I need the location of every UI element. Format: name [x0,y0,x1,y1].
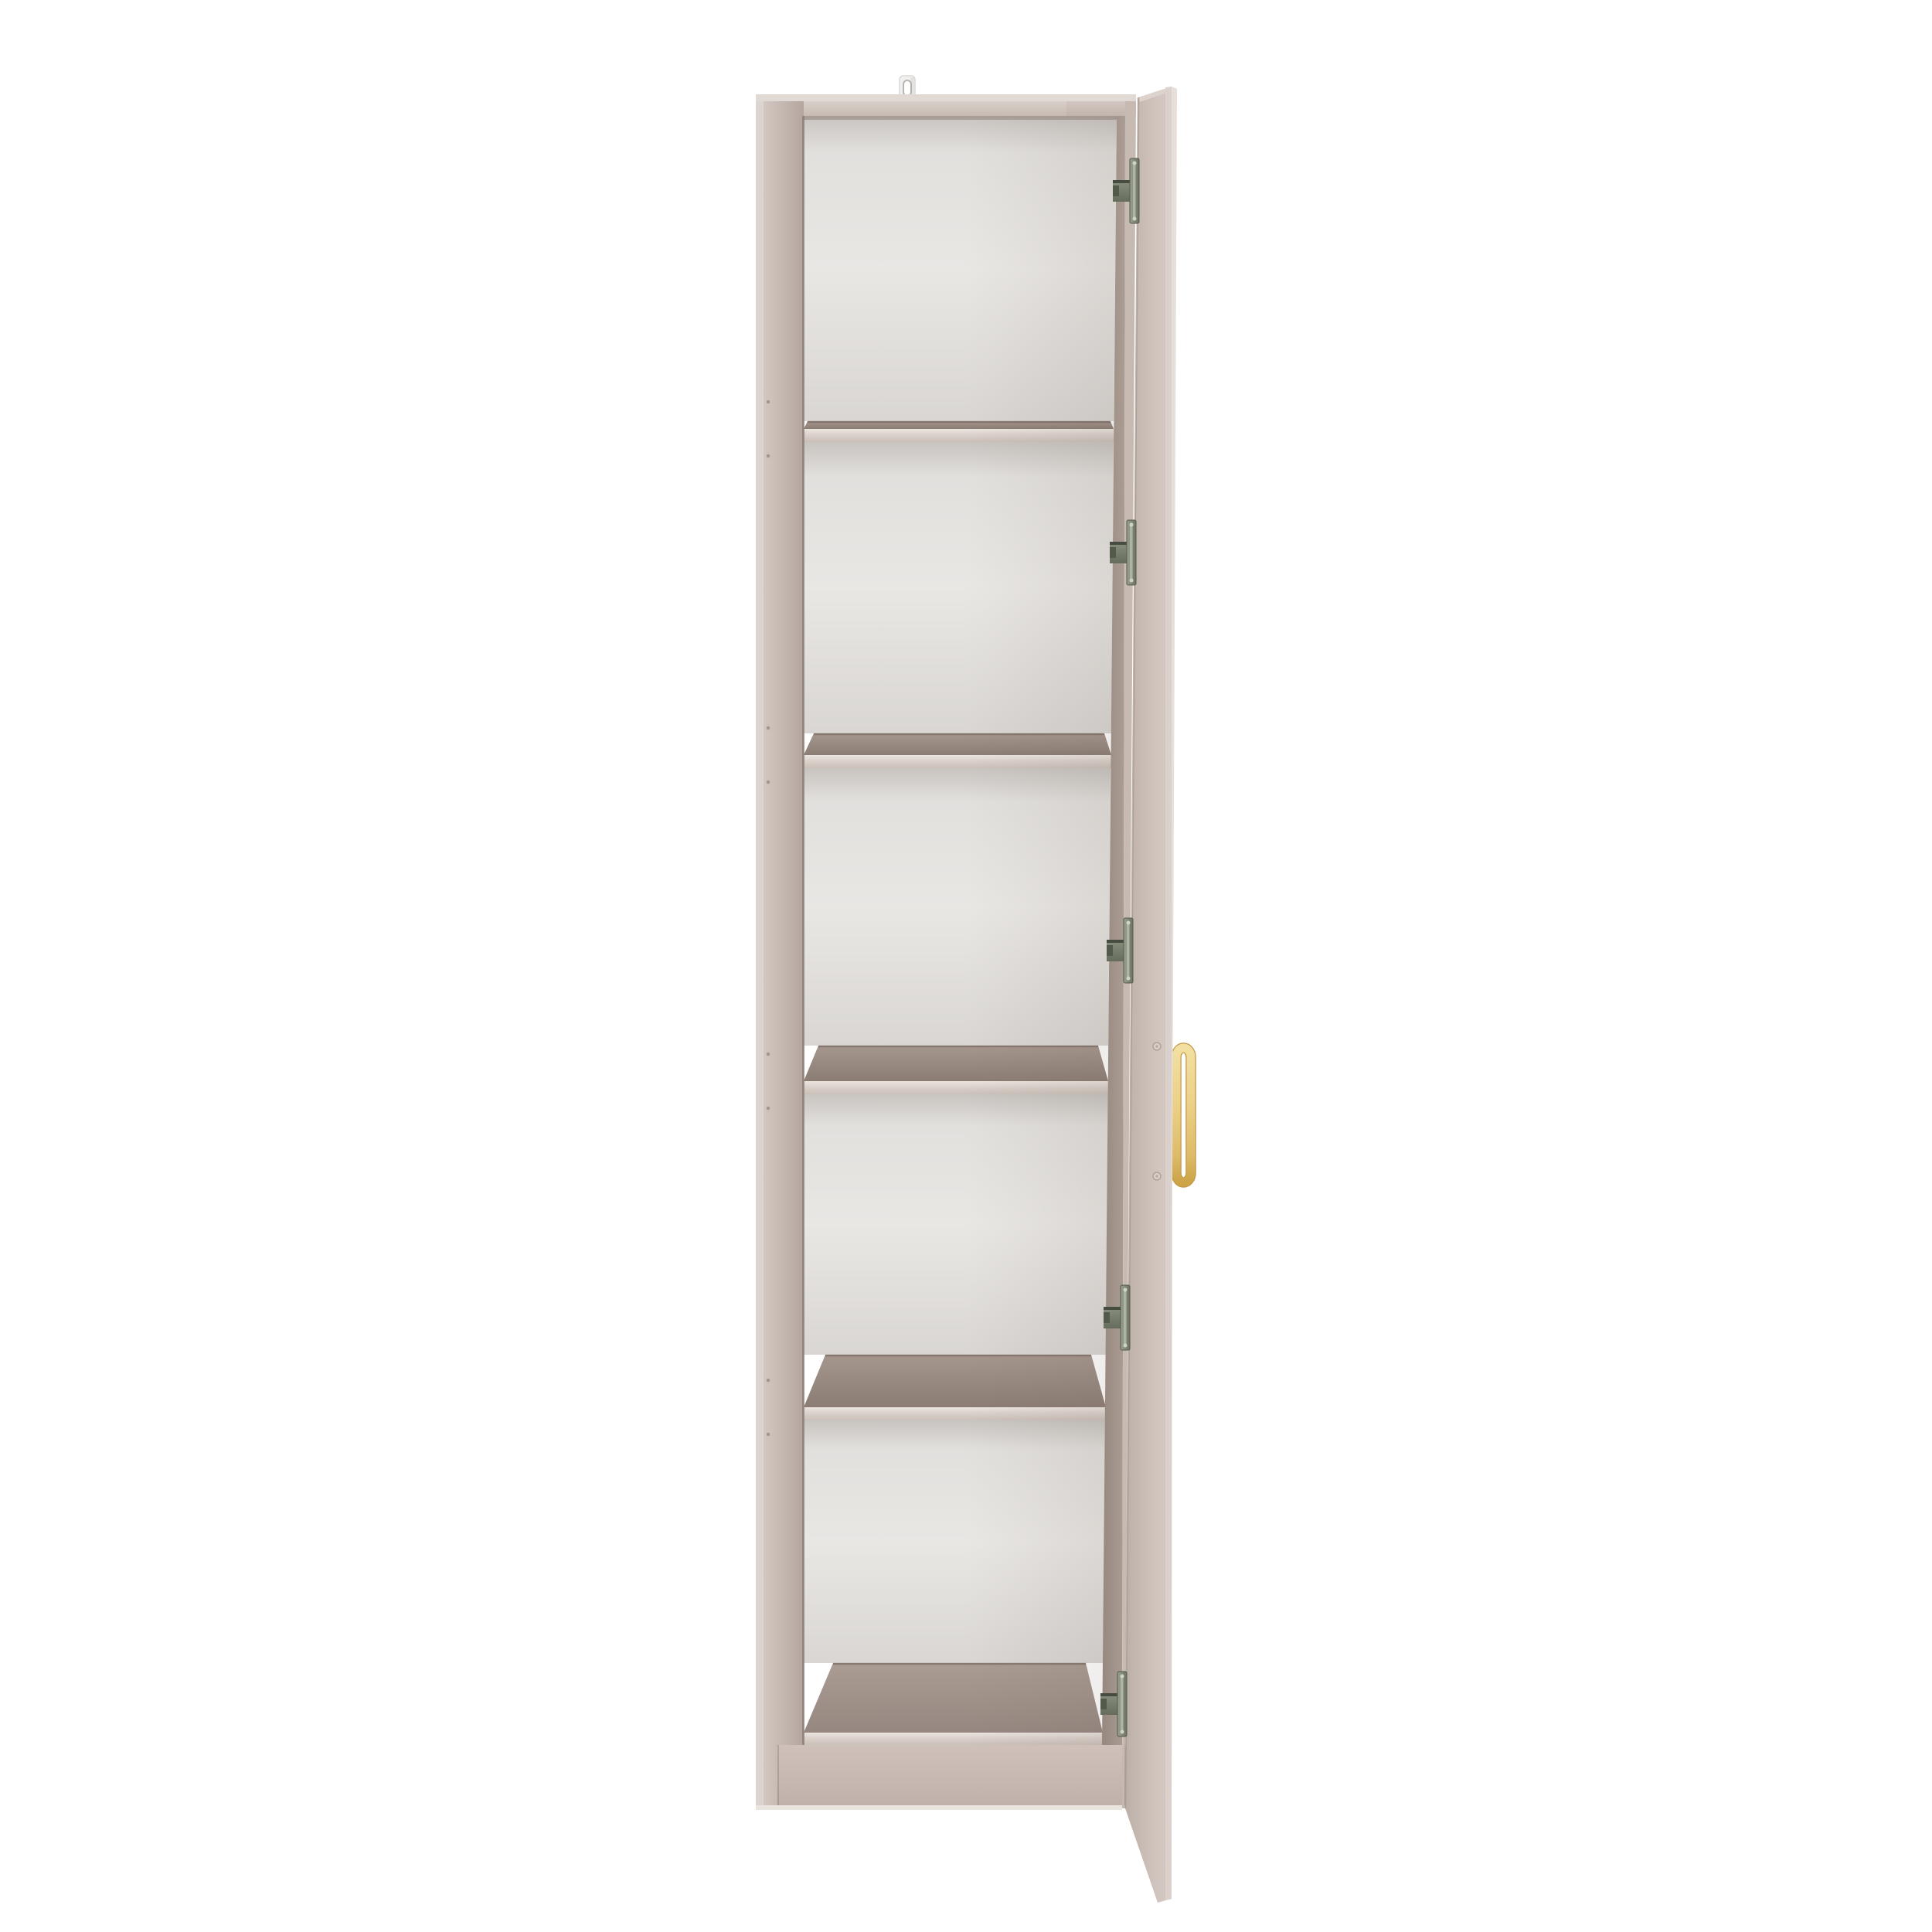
product-image-canvas [0,0,1932,1932]
door-front-corner-highlight [1165,87,1172,1900]
interior-top-shadow [804,116,1117,120]
cabinet-bottom-edge [756,1805,1122,1810]
top-edge-highlight [756,94,1136,101]
handle-bar [1176,1048,1191,1182]
cabinet-left-side [756,101,804,1810]
interior-right-shadow [966,116,1117,1745]
door-outer-face [1172,87,1177,1899]
cabinet-render [0,0,1932,1932]
left-side-face [764,101,804,1810]
door-handle [1176,1048,1191,1182]
left-inner-seam [802,116,804,1745]
wall-bracket-slot [903,80,911,96]
left-outer-highlight [756,101,764,1810]
plinth-face [777,1745,1127,1805]
plinth [756,1745,1127,1810]
cabinet-top-panel [756,94,1136,116]
